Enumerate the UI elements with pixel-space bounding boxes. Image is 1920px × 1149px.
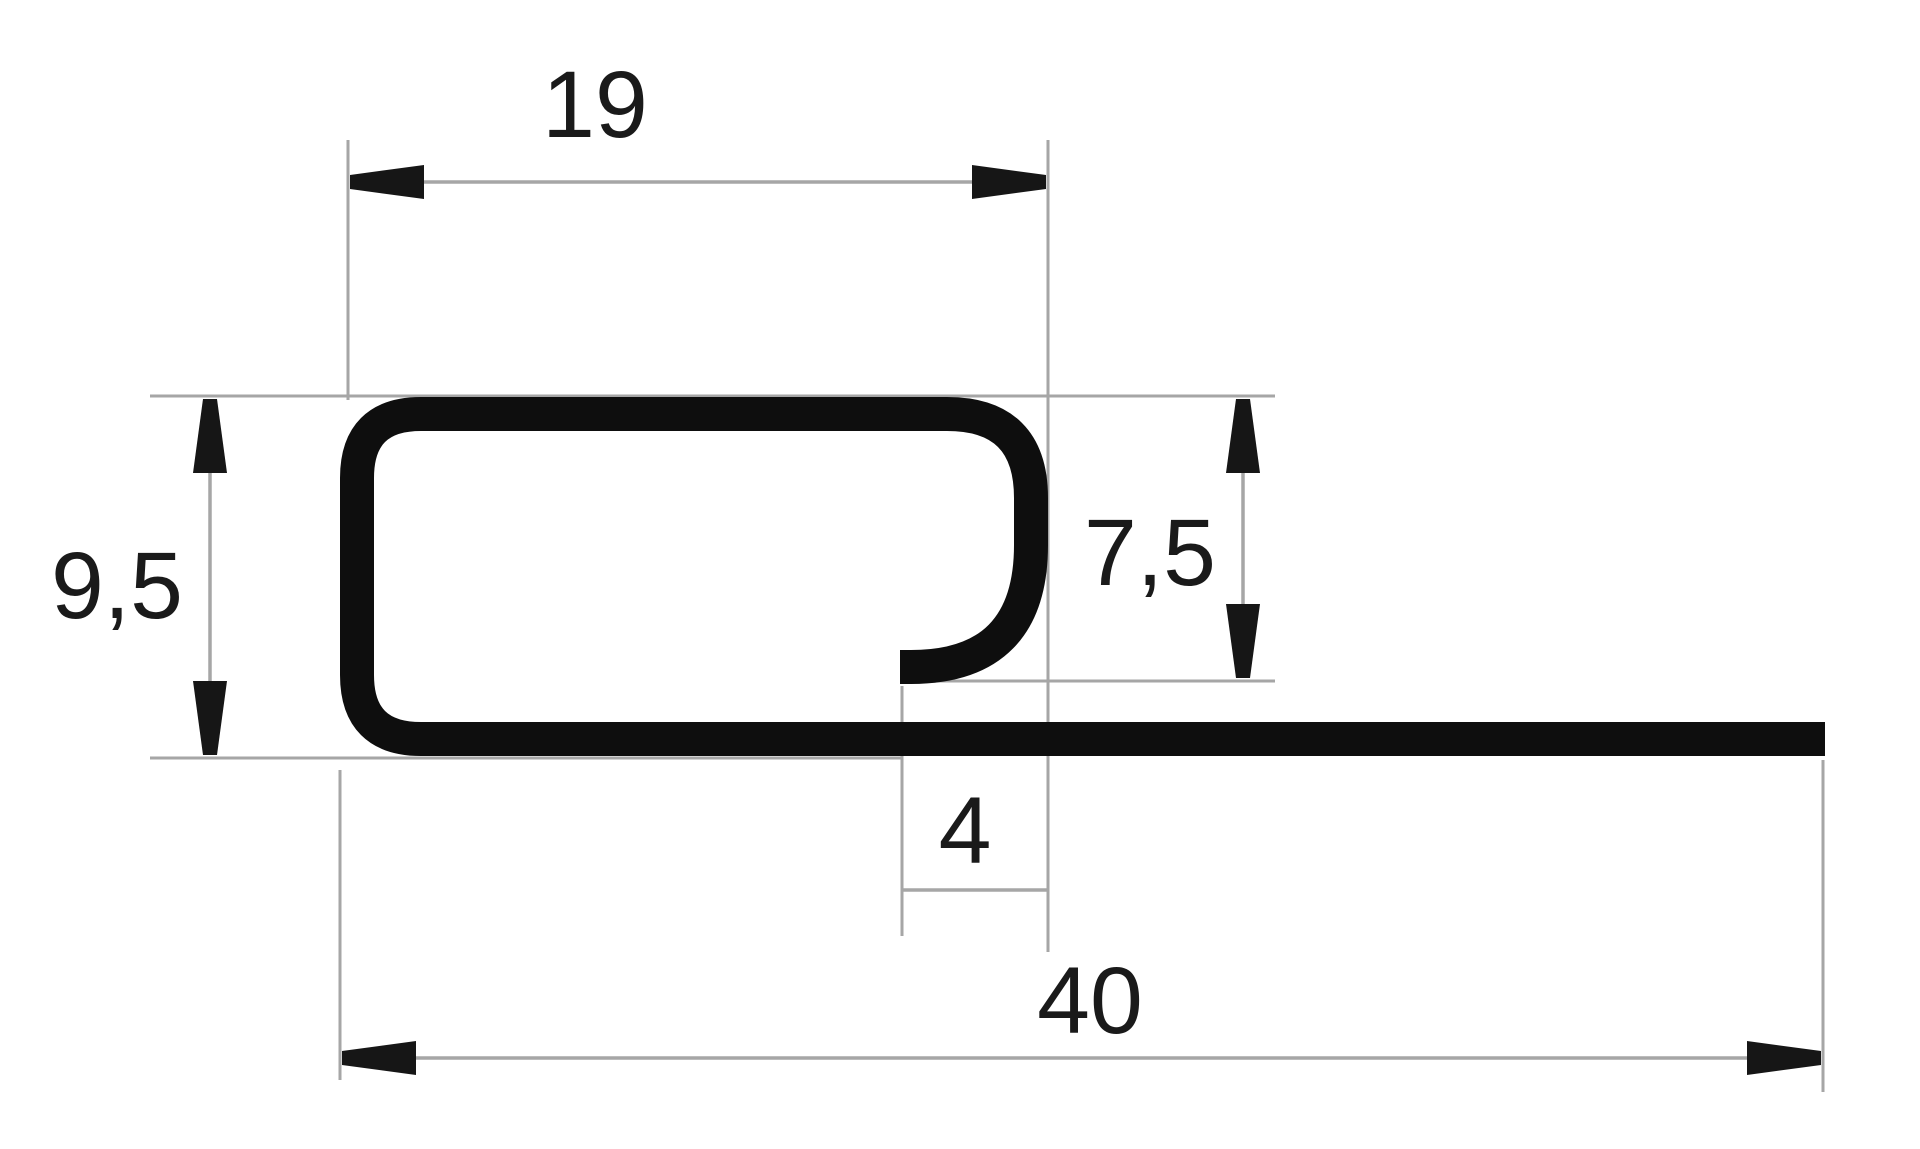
- dim-label-top-width: 19: [542, 52, 648, 158]
- arrowhead-hook-depth-bottom: [1226, 604, 1260, 678]
- arrowhead-total-length-right: [1747, 1041, 1821, 1075]
- arrowhead-top-width-right: [972, 165, 1046, 199]
- arrowhead-total-length-left: [342, 1041, 416, 1075]
- technical-drawing-canvas: 19 9,5 7,5 4 40: [0, 0, 1920, 1149]
- arrowhead-left-height-bottom: [193, 681, 227, 755]
- arrowhead-hook-depth-top: [1226, 399, 1260, 473]
- arrowhead-top-width-left: [350, 165, 424, 199]
- dim-label-hook-offset: 4: [939, 778, 992, 884]
- dim-label-total-length: 40: [1037, 948, 1143, 1054]
- dim-label-hook-depth: 7,5: [1084, 500, 1216, 606]
- dim-label-left-height: 9,5: [51, 533, 183, 639]
- arrowhead-left-height-top: [193, 399, 227, 473]
- profile-drawing: 19 9,5 7,5 4 40: [0, 0, 1920, 1149]
